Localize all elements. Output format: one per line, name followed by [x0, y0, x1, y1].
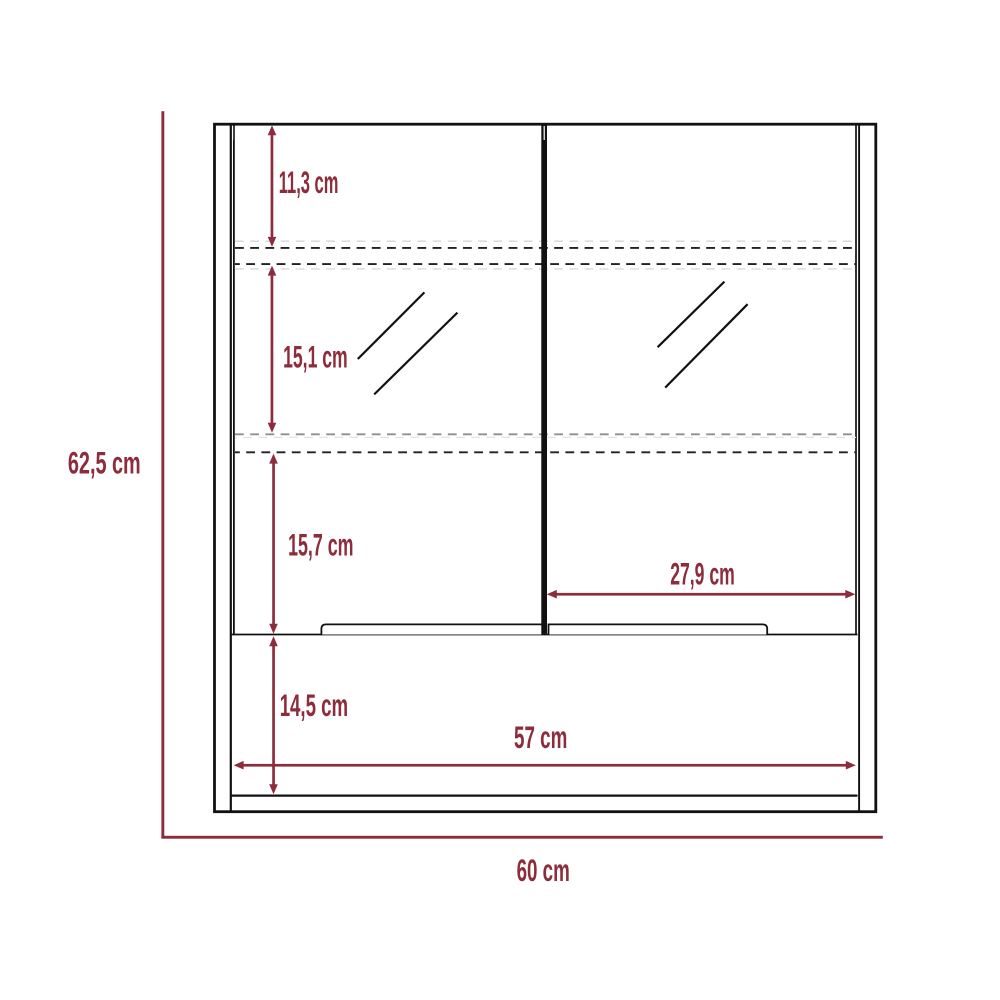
svg-text:60 cm: 60 cm [517, 852, 570, 888]
svg-text:11,3 cm: 11,3 cm [279, 164, 339, 200]
svg-text:14,5 cm: 14,5 cm [280, 687, 348, 723]
svg-text:57 cm: 57 cm [514, 719, 567, 755]
svg-text:27,9 cm: 27,9 cm [670, 555, 735, 591]
svg-text:15,7 cm: 15,7 cm [288, 527, 353, 563]
svg-text:15,1 cm: 15,1 cm [283, 339, 348, 375]
svg-text:62,5 cm: 62,5 cm [68, 444, 141, 480]
